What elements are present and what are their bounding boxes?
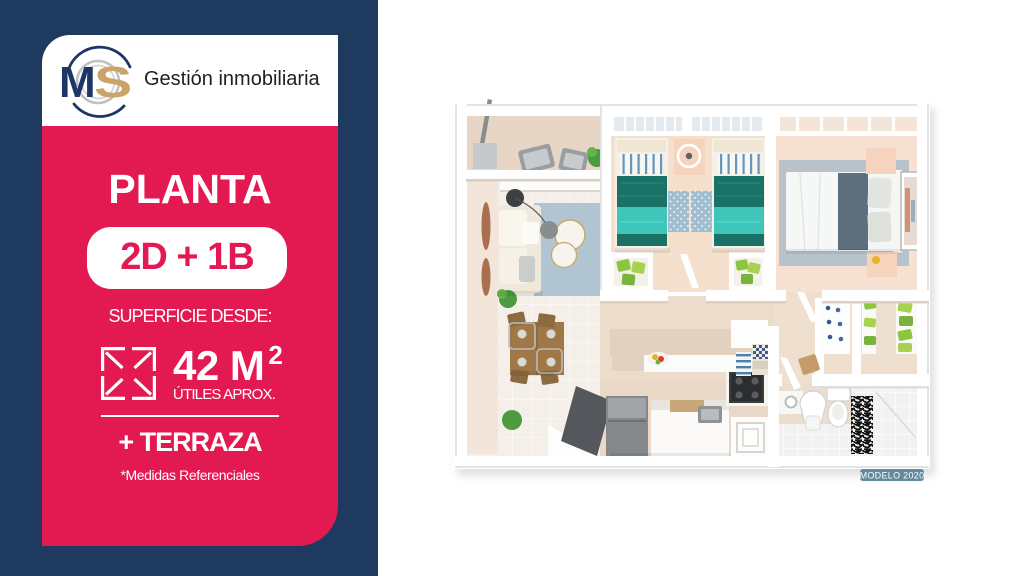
svg-text:M: M	[59, 58, 96, 107]
svg-text:S: S	[94, 57, 132, 106]
svg-text:MODELO 2020: MODELO 2020	[860, 471, 925, 481]
